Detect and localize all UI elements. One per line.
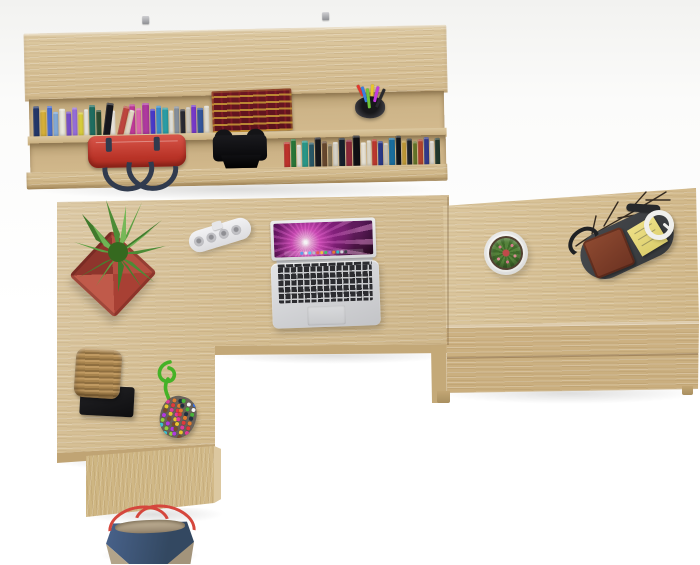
dock-icon bbox=[344, 250, 347, 253]
bead bbox=[191, 407, 196, 412]
scene bbox=[0, 0, 700, 565]
bead bbox=[185, 407, 190, 412]
bead bbox=[180, 403, 185, 408]
book-spine bbox=[84, 109, 89, 138]
bead bbox=[164, 426, 169, 431]
book-spine bbox=[435, 138, 441, 167]
book-spine bbox=[156, 106, 162, 137]
book-spine bbox=[407, 138, 413, 167]
bead bbox=[165, 399, 170, 404]
book-spine bbox=[191, 105, 197, 136]
book-spine bbox=[136, 108, 142, 137]
bead bbox=[178, 430, 183, 435]
laptop-screen bbox=[270, 217, 376, 261]
dock-icon bbox=[328, 251, 331, 254]
drawer-unit-leg bbox=[682, 386, 693, 395]
book-spine bbox=[346, 140, 353, 169]
book-spine bbox=[197, 108, 204, 136]
laptop-dock bbox=[284, 249, 363, 257]
red-handbag-strap-anchor bbox=[154, 137, 160, 151]
dock-icon bbox=[316, 251, 319, 254]
book-spine bbox=[284, 142, 291, 170]
desk-unit-seam bbox=[447, 197, 449, 345]
book-spine bbox=[142, 103, 150, 137]
bead bbox=[171, 403, 176, 408]
book-spine bbox=[89, 105, 96, 138]
book-spine bbox=[59, 109, 66, 139]
dock-icon bbox=[336, 250, 339, 253]
dock-icon bbox=[320, 251, 323, 254]
potted-plant bbox=[62, 194, 174, 298]
book-spine bbox=[418, 139, 424, 167]
cactus bbox=[491, 238, 521, 268]
red-handbag-strap-anchor bbox=[106, 138, 112, 152]
book-spine bbox=[424, 137, 430, 167]
power-strip-socket bbox=[205, 231, 217, 243]
book-spine bbox=[302, 141, 309, 170]
black-case bbox=[209, 128, 272, 169]
antique-book bbox=[211, 88, 293, 133]
laptop-keyboard bbox=[278, 264, 373, 303]
book-spine bbox=[186, 107, 191, 136]
dock-icon bbox=[304, 252, 307, 255]
drawer-unit-leg bbox=[437, 391, 450, 403]
bead bbox=[173, 426, 178, 431]
power-strip-socket bbox=[193, 235, 205, 247]
dock-icon bbox=[340, 250, 343, 253]
book-spine bbox=[396, 136, 402, 168]
laptop-trackpad bbox=[307, 305, 346, 325]
mount-pin-icon bbox=[142, 16, 149, 24]
book-spine bbox=[33, 106, 40, 139]
bead bbox=[163, 430, 168, 435]
book-spine bbox=[40, 110, 47, 139]
book-spine bbox=[389, 138, 396, 168]
book-spine bbox=[72, 107, 78, 138]
wicker-basket bbox=[73, 347, 122, 399]
book-spine bbox=[372, 139, 378, 168]
book-spine bbox=[315, 137, 322, 169]
book-spine bbox=[291, 139, 297, 170]
mount-pin-icon bbox=[322, 12, 329, 20]
cactus-pot bbox=[484, 231, 528, 275]
book-spine bbox=[162, 108, 169, 137]
laptop-body bbox=[271, 260, 381, 329]
book-spine bbox=[339, 138, 346, 169]
pencil-cup bbox=[355, 84, 386, 119]
laptop bbox=[269, 217, 381, 329]
book-spine bbox=[322, 141, 328, 169]
book-spine bbox=[96, 110, 102, 138]
dock-icon bbox=[332, 251, 335, 254]
power-strip-socket bbox=[230, 224, 242, 236]
dock-icon bbox=[308, 251, 311, 254]
tote-bag bbox=[106, 510, 194, 564]
red-handbag bbox=[88, 134, 187, 186]
book-spine bbox=[47, 106, 53, 139]
bead bbox=[159, 422, 164, 427]
book-spine bbox=[150, 109, 156, 137]
book-spine bbox=[174, 106, 180, 136]
wall-shelf bbox=[23, 17, 449, 193]
dock-icon bbox=[324, 251, 327, 254]
bead bbox=[172, 431, 177, 436]
laptop-wallpaper bbox=[273, 220, 373, 257]
dock-icon bbox=[312, 251, 315, 254]
book-spine bbox=[367, 140, 372, 168]
power-strip-socket bbox=[218, 228, 230, 240]
book-spine bbox=[353, 136, 361, 169]
pen-set bbox=[359, 84, 383, 100]
dock-icon bbox=[300, 252, 303, 255]
